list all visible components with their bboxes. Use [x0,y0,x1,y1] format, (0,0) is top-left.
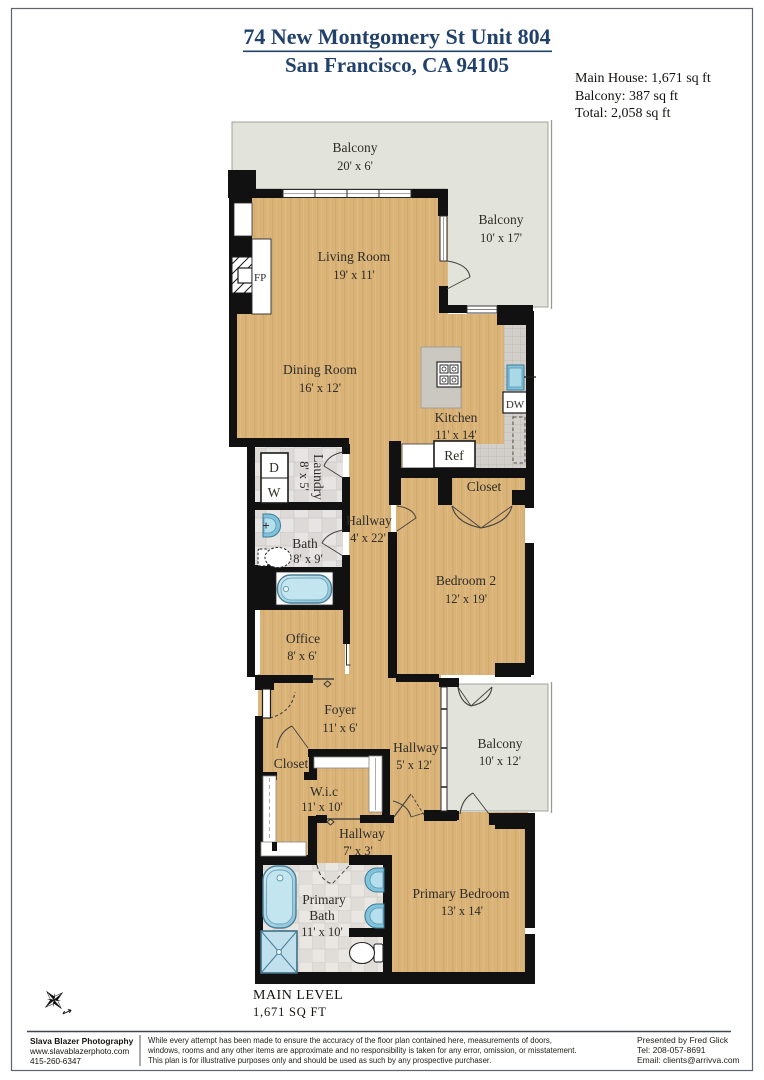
svg-text:5' x 12': 5' x 12' [396,758,432,772]
svg-text:Balcony: Balcony [478,736,523,751]
svg-text:19' x 11': 19' x 11' [333,268,375,282]
svg-text:10' x 12': 10' x 12' [479,754,521,768]
svg-text:FP: FP [254,272,266,284]
svg-text:Hallway: Hallway [339,826,385,841]
svg-text:1,671 SQ FT: 1,671 SQ FT [253,1005,327,1019]
svg-text:11' x 10': 11' x 10' [301,925,343,939]
svg-text:11' x 14': 11' x 14' [435,428,477,442]
svg-text:Bedroom 2: Bedroom 2 [436,573,496,588]
svg-text:Slava Blazer Photography: Slava Blazer Photography [30,1036,134,1046]
svg-text:13' x 14': 13' x 14' [441,904,483,918]
svg-text:While every attempt has been m: While every attempt has been made to ens… [148,1036,552,1045]
svg-text:20' x 6': 20' x 6' [337,159,373,173]
svg-text:Email: clients@arrivva.com: Email: clients@arrivva.com [637,1055,740,1065]
svg-text:12' x 19': 12' x 19' [445,592,487,606]
svg-text:8' x 9': 8' x 9' [293,552,323,566]
svg-text:8' x 6': 8' x 6' [287,649,317,663]
svg-text:Balcony: 387 sq ft: Balcony: 387 sq ft [575,89,678,104]
svg-text:10' x 17': 10' x 17' [480,231,522,245]
svg-text:Foyer: Foyer [324,702,356,717]
svg-text:Balcony: Balcony [333,140,378,155]
svg-text:Kitchen: Kitchen [435,410,478,425]
svg-text:11' x 10': 11' x 10' [301,800,343,814]
svg-text:Primary Bedroom: Primary Bedroom [412,886,510,901]
svg-text:7' x 3': 7' x 3' [343,844,373,858]
svg-text:Main House: 1,671 sq ft: Main House: 1,671 sq ft [575,71,711,86]
svg-text:DW: DW [506,399,525,411]
svg-text:16' x 12': 16' x 12' [299,381,341,395]
svg-text:415-260-6347: 415-260-6347 [30,1057,81,1066]
svg-text:Bath: Bath [292,536,318,551]
svg-text:Hallway: Hallway [346,513,392,528]
svg-text:Closet: Closet [274,756,309,771]
svg-text:Primary: Primary [302,892,346,907]
svg-text:Total: 2,058 sq ft: Total: 2,058 sq ft [575,106,671,121]
svg-text:Laundry: Laundry [311,454,326,500]
svg-text:74 New Montgomery St Unit 804: 74 New Montgomery St Unit 804 [243,24,550,49]
svg-text:windows, rooms and any other i: windows, rooms and any other items are a… [147,1046,577,1055]
svg-text:Tel: 208-057-8691: Tel: 208-057-8691 [637,1045,706,1055]
svg-text:Ref: Ref [444,448,464,463]
svg-text:Bath: Bath [309,908,335,923]
svg-text:D: D [269,460,279,475]
svg-text:Hallway: Hallway [393,740,439,755]
svg-text:Dining Room: Dining Room [283,362,357,377]
svg-text:Living Room: Living Room [318,249,391,264]
svg-text:This plan is for illustrative: This plan is for illustrative purposes o… [148,1056,491,1065]
svg-text:San Francisco, CA 94105: San Francisco, CA 94105 [285,53,509,77]
svg-text:8' x 5': 8' x 5' [297,461,311,491]
svg-text:Balcony: Balcony [479,212,524,227]
svg-text:Closet: Closet [467,479,502,494]
svg-text:4' x 22': 4' x 22' [350,531,386,545]
svg-text:W: W [268,485,281,500]
svg-text:W.i.c: W.i.c [310,784,338,799]
svg-text:11' x 6': 11' x 6' [322,721,357,735]
svg-text:MAIN LEVEL: MAIN LEVEL [253,988,343,1003]
svg-text:Office: Office [286,631,320,646]
svg-text:www.slavablazerphoto.com: www.slavablazerphoto.com [29,1047,129,1056]
svg-text:Presented by Fred Glick: Presented by Fred Glick [637,1035,729,1045]
